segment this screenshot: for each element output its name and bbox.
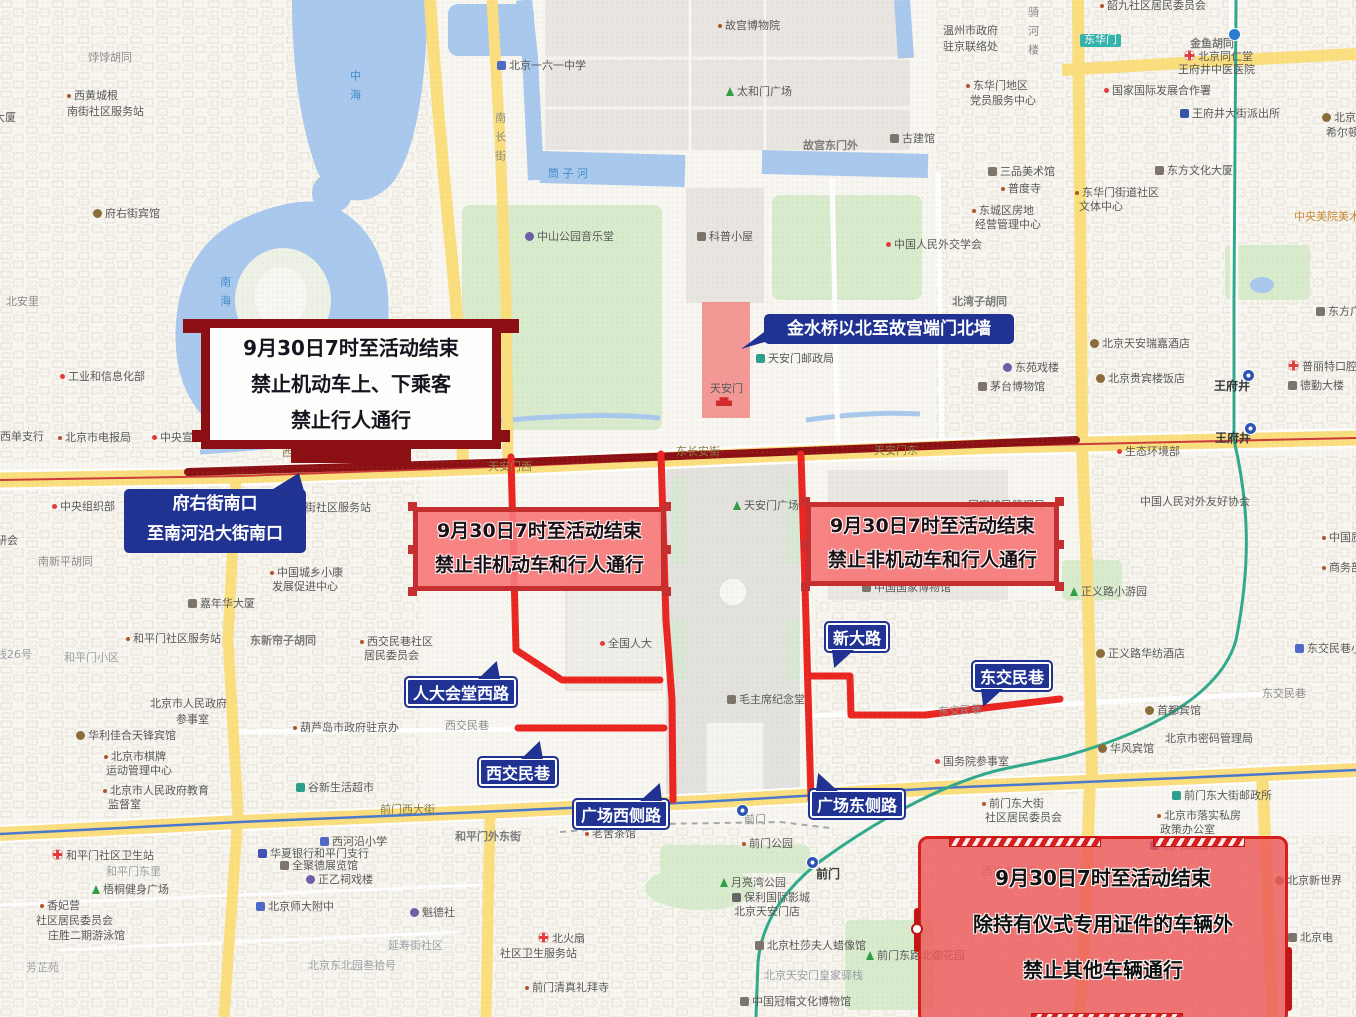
ban-line: 9月30日7时至活动结束: [921, 855, 1285, 901]
road-tag-label: 广场东侧路: [817, 796, 897, 815]
frame-hatch: [1153, 837, 1245, 847]
ban-line: 禁止其他车辆通行: [921, 947, 1285, 993]
callout-pointer: [816, 773, 838, 791]
south-vehicle-ban-box: 9月30日7时至活动结束 除持有仪式专用证件的车辆外 禁止其他车辆通行: [918, 836, 1288, 1017]
road-tag-xindalu: 新大路: [824, 621, 890, 653]
frame-tab: [662, 545, 671, 554]
frame-tab: [662, 587, 671, 596]
range-line: 至南河沿大街南口: [124, 519, 306, 549]
frame-tab: [801, 582, 810, 591]
map-screenshot: 饽饽胡同西黄城根南街社区服务站大厦府右街宾馆中海南海北安里工业和信息化部西单支行…: [0, 0, 1356, 1017]
frame-tab: [408, 502, 417, 511]
frame-tab: [1055, 582, 1064, 591]
frame-tab: [1055, 497, 1064, 506]
west-side-ban-box: 9月30日7时至活动结束 禁止非机动车和行人通行: [413, 507, 666, 591]
road-tag-square-east: 广场东侧路: [808, 788, 906, 820]
ban-line: 禁止非机动车和行人通行: [418, 548, 661, 582]
frame-rivet: [911, 923, 923, 935]
road-tag-xijiaominxiang: 西交民巷: [477, 756, 559, 788]
notice-line: 9月30日7时至活动结束: [210, 330, 492, 366]
frame-tab: [408, 587, 417, 596]
ban-line: 除持有仪式专用证件的车辆外: [921, 901, 1285, 947]
frame-tab: [291, 449, 411, 463]
notice-line: 禁止行人通行: [210, 402, 492, 438]
frame-tab: [492, 430, 510, 442]
callout-pointer: [981, 689, 1003, 707]
callout-pointer: [741, 327, 771, 349]
annotation-layer: 9月30日7时至活动结束 禁止机动车上、下乘客 禁止行人通行 府右街南口 至南河…: [0, 0, 1356, 1017]
road-tag-renmin-west: 人大会堂西路: [404, 676, 518, 708]
road-tag-label: 西交民巷: [486, 764, 550, 783]
jinshui-label: 金水桥以北至故宫端门北墙: [787, 319, 991, 339]
frame-hatch: [1031, 1013, 1183, 1017]
frame-tab: [192, 430, 210, 442]
callout-pointer: [270, 473, 304, 491]
road-tag-label: 新大路: [833, 629, 881, 648]
ban-line: 禁止非机动车和行人通行: [811, 543, 1054, 577]
road-tag-square-west: 广场西侧路: [572, 798, 670, 830]
road-tag-label: 广场西侧路: [581, 806, 661, 825]
frame-tab: [492, 319, 519, 333]
ban-line: 9月30日7时至活动结束: [811, 509, 1054, 543]
callout-pointer: [832, 650, 854, 668]
frame-tab: [801, 540, 810, 549]
frame-hatch: [949, 837, 1101, 847]
frame-tab: [662, 502, 671, 511]
frame-tab: [1055, 540, 1064, 549]
callout-pointer: [478, 661, 500, 679]
frame-tab: [801, 497, 810, 506]
callout-pointer: [521, 741, 543, 759]
ban-line: 9月30日7时至活动结束: [418, 514, 661, 548]
notice-line: 禁止机动车上、下乘客: [210, 366, 492, 402]
road-tag-label: 人大会堂西路: [413, 684, 509, 703]
callout-pointer: [640, 783, 662, 801]
range-line: 府右街南口: [124, 489, 306, 519]
changan-closure-notice-box: 9月30日7时至活动结束 禁止机动车上、下乘客 禁止行人通行: [201, 319, 501, 449]
closure-range-callout: 府右街南口 至南河沿大街南口: [124, 489, 306, 553]
jinshui-zone-callout: 金水桥以北至故宫端门北墙: [764, 314, 1014, 344]
east-side-ban-box: 9月30日7时至活动结束 禁止非机动车和行人通行: [806, 502, 1059, 586]
frame-tab: [408, 545, 417, 554]
frame-bar: [1286, 947, 1292, 1011]
frame-tab: [183, 319, 210, 333]
road-tag-label: 东交民巷: [980, 668, 1044, 687]
road-tag-dongjiaominxiang: 东交民巷: [971, 660, 1053, 692]
